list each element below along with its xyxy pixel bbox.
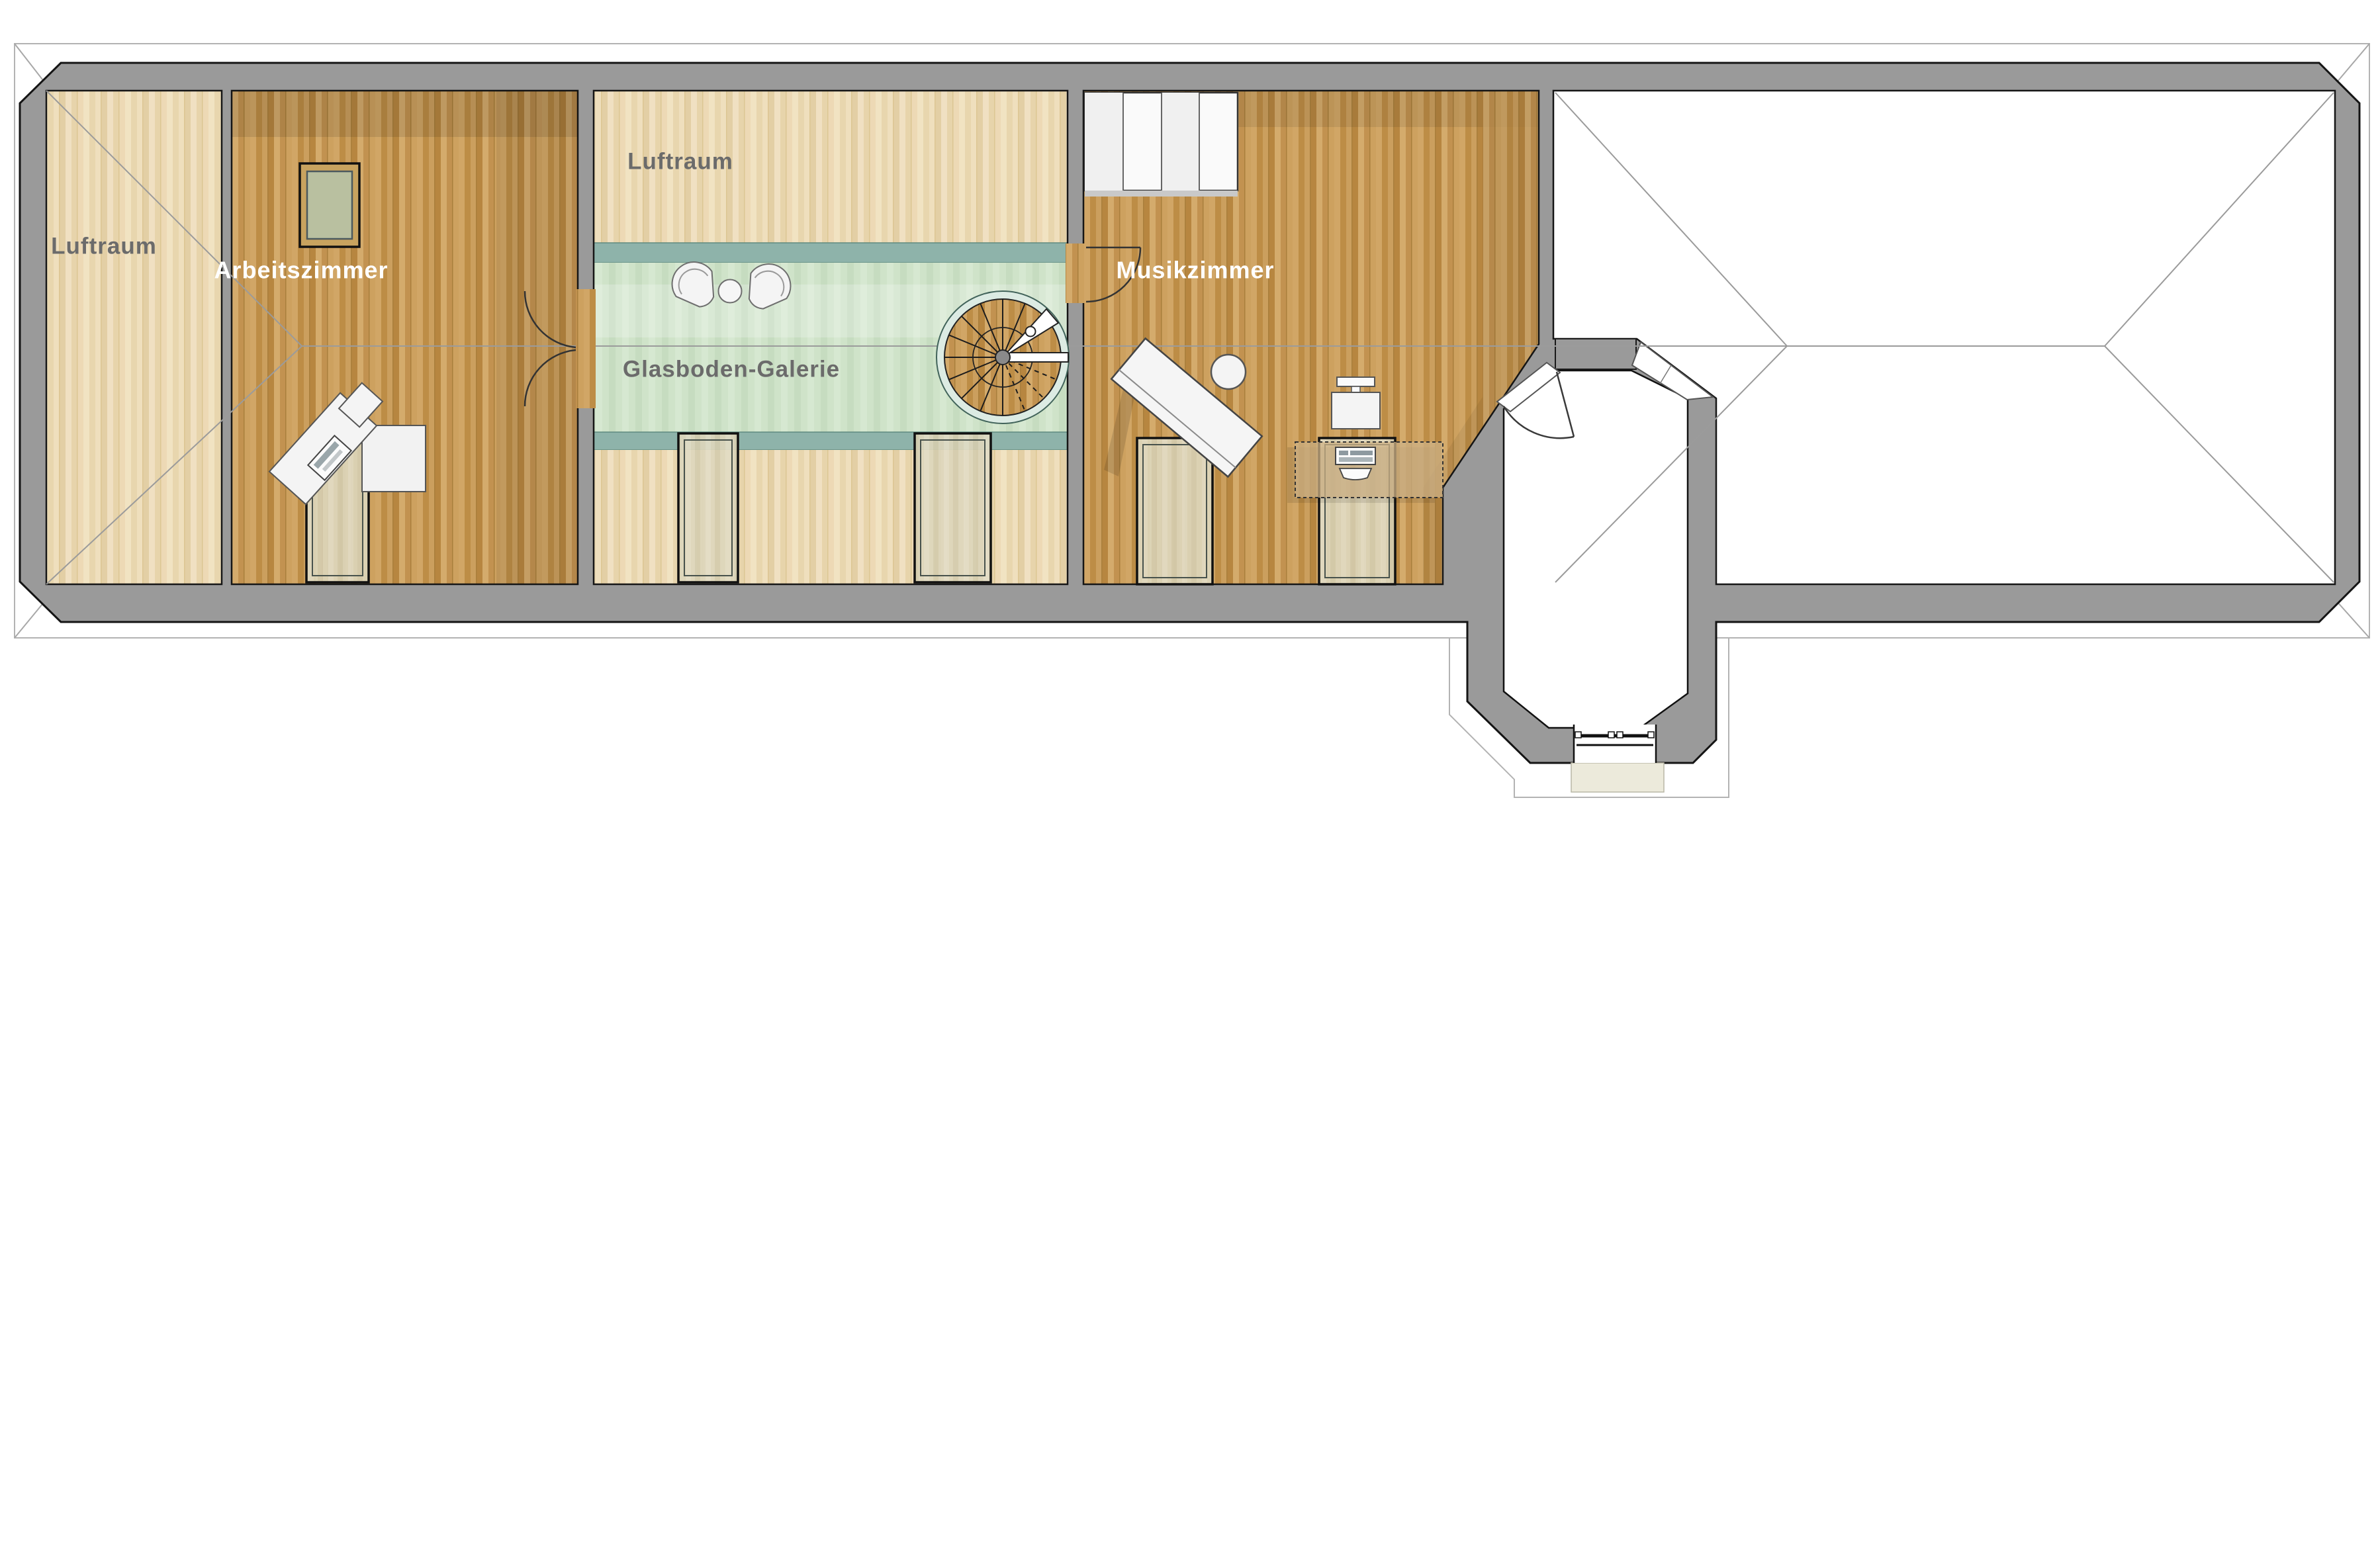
shadow-az-right <box>496 91 578 584</box>
bay-window-opening <box>1574 725 1656 763</box>
doorway-musikzimmer <box>1066 243 1086 303</box>
stair-center-post <box>995 350 1010 365</box>
skylight-gallery-2 <box>915 433 991 582</box>
floor-plan-page: Luftraum Arbeitszimmer Luftraum Glasbode… <box>0 0 2380 1547</box>
roof-window-arbeitszimmer <box>300 163 359 247</box>
tower-bay-window <box>1571 725 1664 792</box>
keyboard <box>1340 468 1371 480</box>
bay-window-sill <box>1571 763 1664 792</box>
chair-seat <box>1332 392 1380 429</box>
label-luftraum-left: Luftraum <box>51 234 157 259</box>
side-table <box>719 280 742 303</box>
tower-interior <box>1504 371 1688 728</box>
wardrobe <box>1085 93 1238 197</box>
desk-return <box>362 425 426 492</box>
tower-top-wall <box>1555 339 1636 369</box>
label-arbeitszimmer: Arbeitszimmer <box>214 257 388 284</box>
computer-monitor <box>1336 447 1375 464</box>
label-musikzimmer: Musikzimmer <box>1116 257 1274 284</box>
label-luftraum-middle: Luftraum <box>627 149 733 175</box>
floor-plan-svg: Luftraum Arbeitszimmer Luftraum Glasbode… <box>0 0 2380 1547</box>
skylight-gallery-1 <box>678 433 738 582</box>
room-luftraum-left <box>46 91 222 584</box>
wardrobe-front-edge <box>1085 191 1238 197</box>
doorway-arbeitszimmer <box>576 289 596 408</box>
gallery-parapet-bottom <box>594 432 1068 450</box>
office-chair <box>1332 377 1380 429</box>
label-glasboden-galerie: Glasboden-Galerie <box>623 357 840 382</box>
gallery-parapet-top <box>594 243 1068 263</box>
spiral-staircase <box>937 291 1069 423</box>
piano-stool <box>1211 355 1246 389</box>
skylight-musikzimmer-1 <box>1137 438 1213 584</box>
room-middle-lower-strip <box>594 450 1068 584</box>
stair-landing-rail <box>1003 353 1068 362</box>
stair-newel-knob <box>1026 327 1036 337</box>
chair-backrest <box>1337 377 1375 386</box>
